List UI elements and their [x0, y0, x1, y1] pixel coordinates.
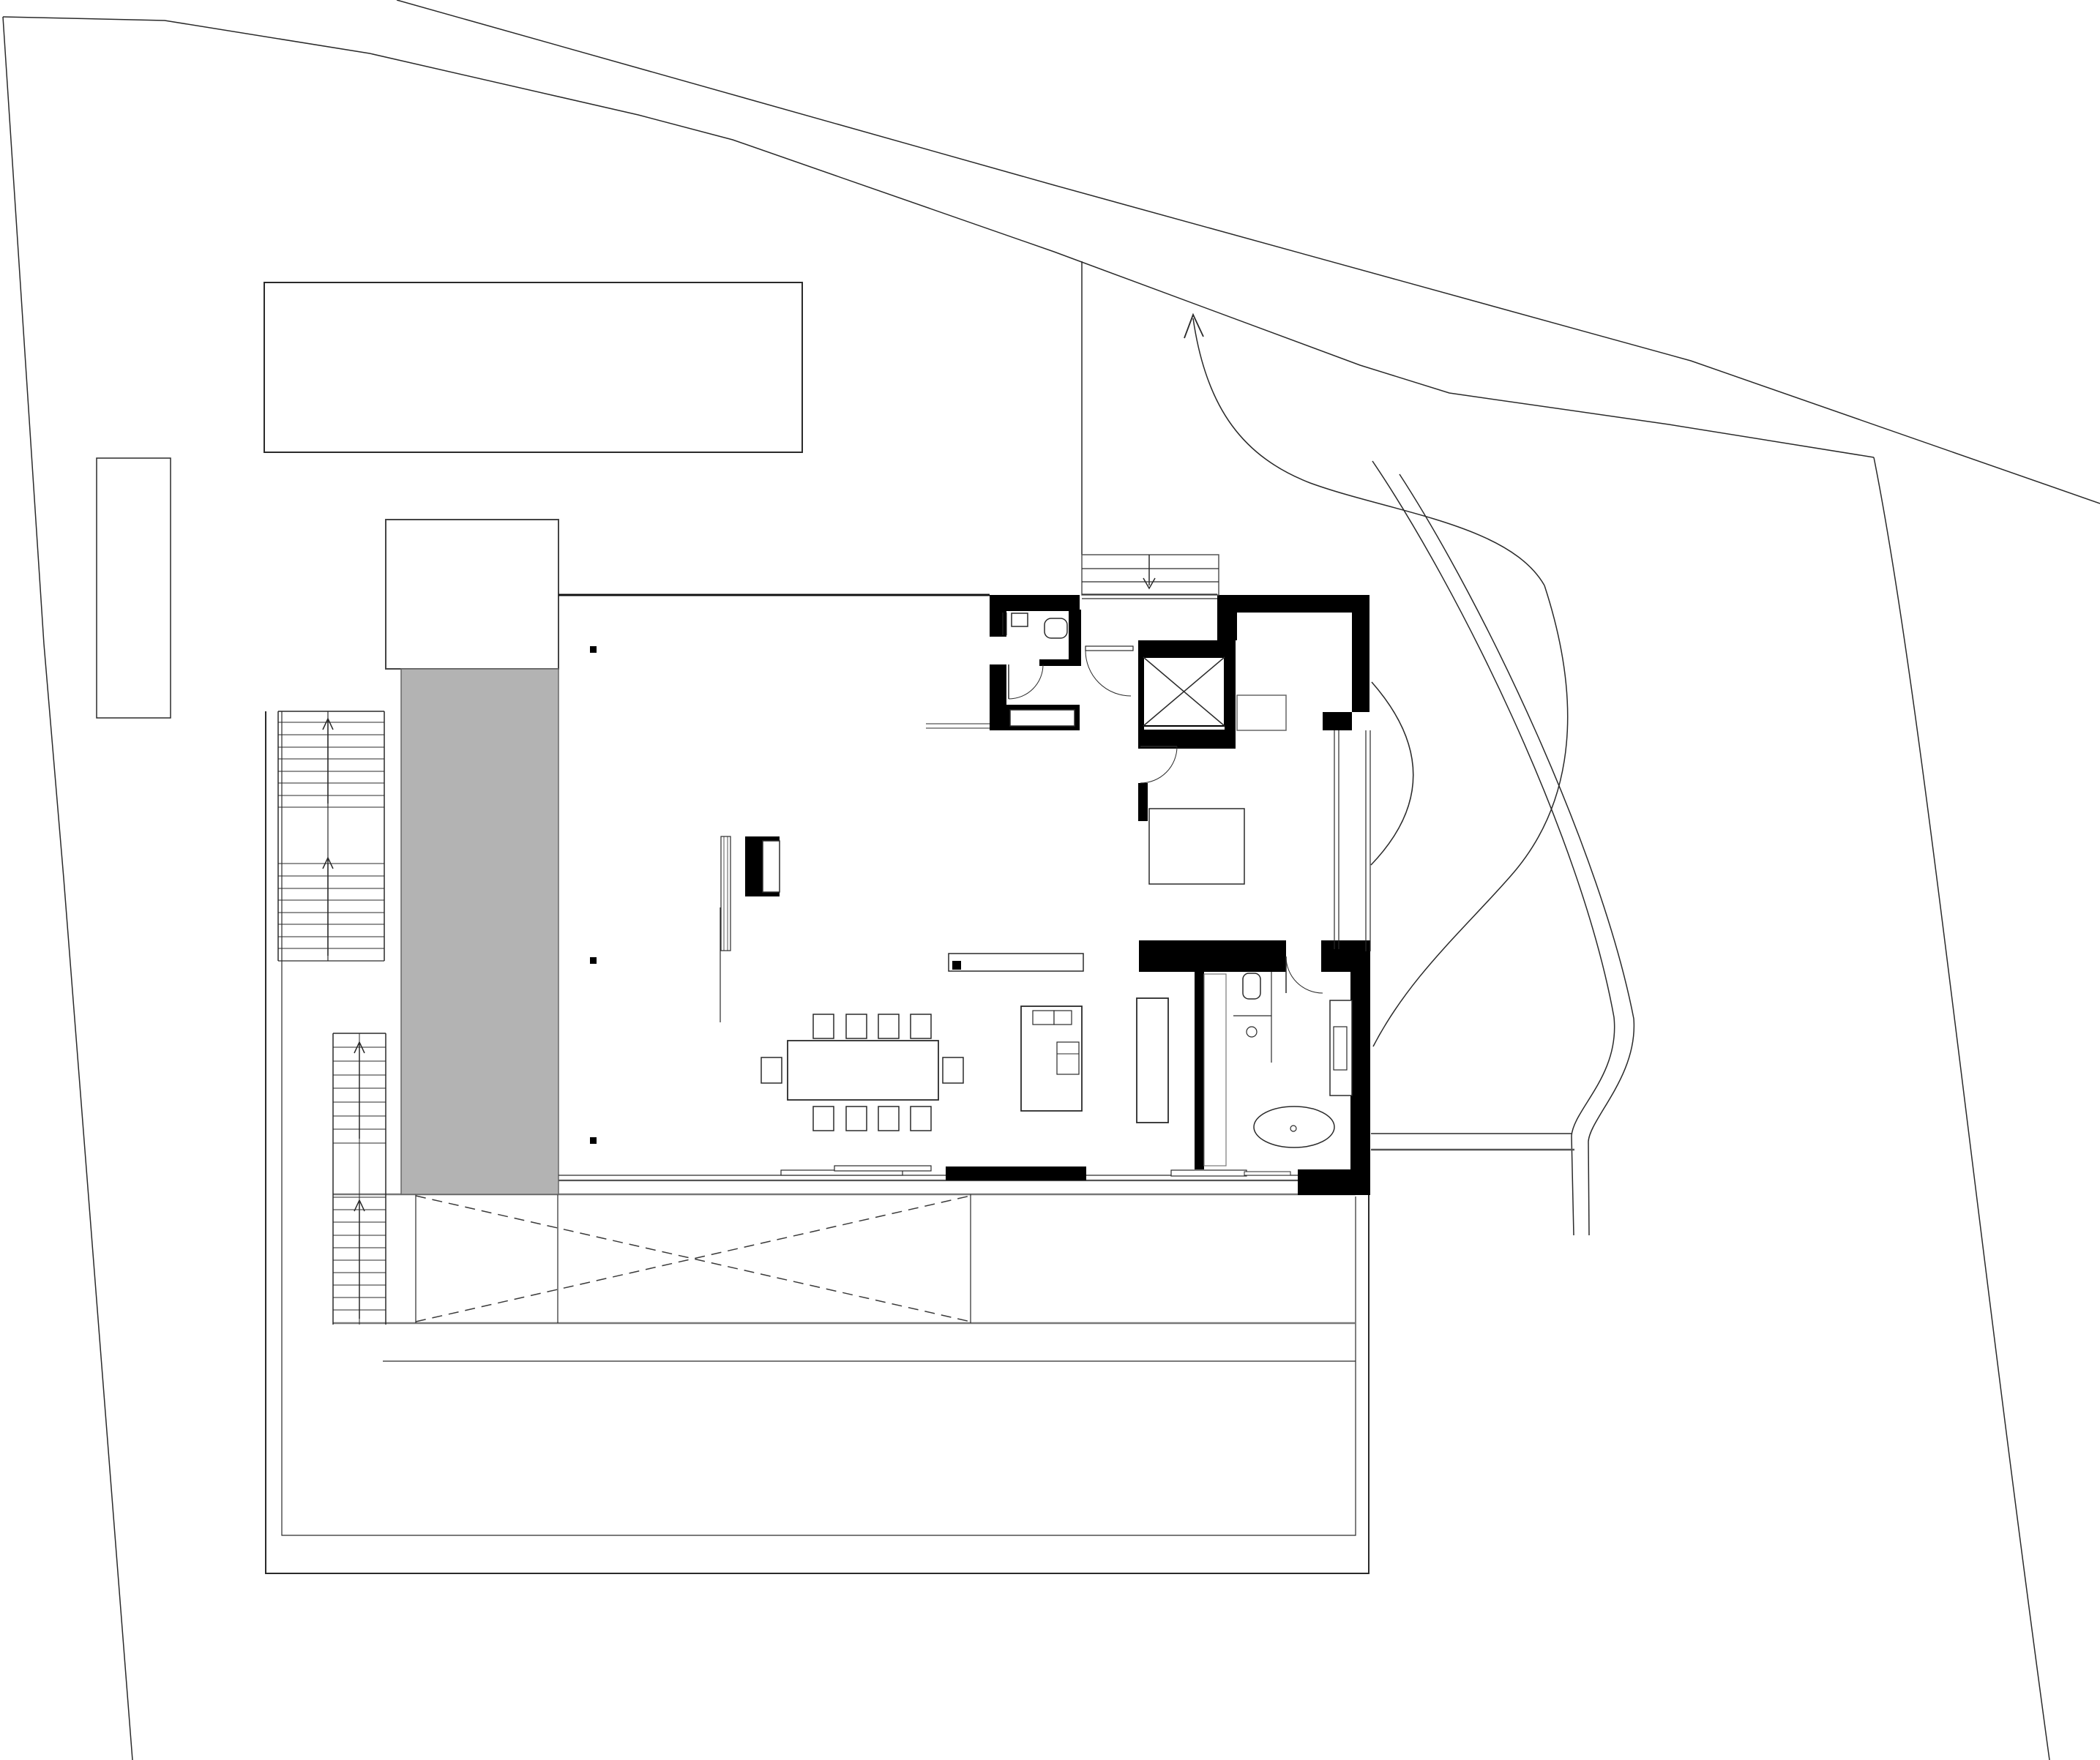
bath-door-swing — [1286, 956, 1323, 993]
kitchen-counter-east — [1137, 998, 1168, 1123]
footpath-curve — [1193, 318, 1544, 585]
dining-chair — [813, 1106, 834, 1131]
bath-vanity-basin — [1334, 1027, 1347, 1070]
chimney-block — [386, 520, 558, 669]
wall-north-east — [1217, 595, 1370, 613]
stair-sw-up-arrow-1 — [354, 1042, 365, 1139]
pool-terrace — [264, 282, 802, 452]
entry-bench-inner — [1010, 710, 1075, 726]
garden-loop — [1371, 682, 1413, 865]
wc-toilet — [1045, 618, 1067, 638]
vestibule-door-swing — [1086, 651, 1131, 696]
stair-sw-up-arrow-2 — [354, 1200, 365, 1319]
steel-column — [590, 1137, 597, 1144]
wall-ne-room-east — [1352, 595, 1370, 712]
bath-wardrobe — [1204, 974, 1226, 1166]
sofa-cushion — [952, 961, 961, 970]
bedroom-door-swing — [1140, 746, 1177, 783]
wall-hall-stub — [1138, 783, 1148, 821]
entry-steps — [1082, 555, 1219, 595]
fireplace-hearth — [763, 841, 780, 892]
wall-bath-south — [1298, 1169, 1370, 1195]
wc-cistern — [1012, 613, 1028, 626]
wall-shaft-top — [1138, 640, 1236, 657]
drive-edge-inner — [1400, 474, 1634, 1235]
floor-plan-canvas — [0, 0, 2100, 1760]
slider-panel-black — [946, 1167, 1086, 1180]
dining-chair — [846, 1014, 867, 1038]
wall-ne-room-south-stub — [1323, 712, 1352, 730]
bedroom-bed — [1149, 809, 1244, 884]
wall-shaft-bottom — [1138, 730, 1236, 749]
media-wall-panel — [721, 836, 730, 951]
steel-column — [590, 957, 597, 964]
bath-floor-drain — [1247, 1027, 1257, 1037]
garden-pad — [97, 458, 171, 718]
dining-chair — [846, 1106, 867, 1131]
wc-door-swing — [1009, 664, 1043, 699]
slider-panel-4 — [1244, 1172, 1290, 1175]
sofa-bench — [949, 954, 1083, 971]
site-boundary-east — [1874, 457, 2049, 1760]
stair-nw-up-arrow-1 — [323, 719, 333, 804]
dining-chair — [911, 1106, 931, 1131]
kitchen-sink-left — [1033, 1011, 1054, 1025]
dining-table — [788, 1041, 938, 1100]
wall-bath-west — [1195, 972, 1204, 1169]
dining-chair — [911, 1014, 931, 1038]
wall-bath-east — [1350, 951, 1370, 1169]
wall-ne-room-west — [1217, 595, 1237, 640]
dining-chair — [813, 1014, 834, 1038]
bath-tub — [1254, 1106, 1334, 1147]
steel-column — [590, 646, 597, 653]
garden-arc — [1373, 585, 1568, 1046]
dining-chair — [878, 1106, 899, 1131]
wall-north-west — [990, 595, 1080, 611]
service-core-gray — [401, 669, 558, 1194]
plan-sheet — [0, 0, 2100, 1760]
ne-closet — [1237, 695, 1286, 730]
wall-wc-east — [1069, 610, 1081, 666]
drive-edge-outer — [1372, 461, 1615, 1235]
vestibule-door-leaf — [1086, 646, 1133, 651]
kitchen-sink-right — [1054, 1011, 1072, 1025]
site-boundary-west — [3, 17, 132, 1760]
wall-bath-north — [1139, 940, 1286, 972]
wall-wc-west-lower — [990, 664, 1006, 706]
dining-chair-east — [943, 1057, 963, 1083]
dining-chair-west — [761, 1057, 782, 1083]
wall-wc-west-upper — [990, 610, 1006, 637]
slider-panel-3 — [1171, 1170, 1247, 1176]
bath-toilet — [1243, 973, 1260, 999]
dining-chair — [878, 1014, 899, 1038]
wall-shaft-right — [1225, 657, 1236, 730]
kitchen-cooktop — [1057, 1042, 1079, 1074]
stair-nw-up-arrow-2 — [323, 858, 333, 956]
slider-panel-2 — [834, 1166, 931, 1171]
